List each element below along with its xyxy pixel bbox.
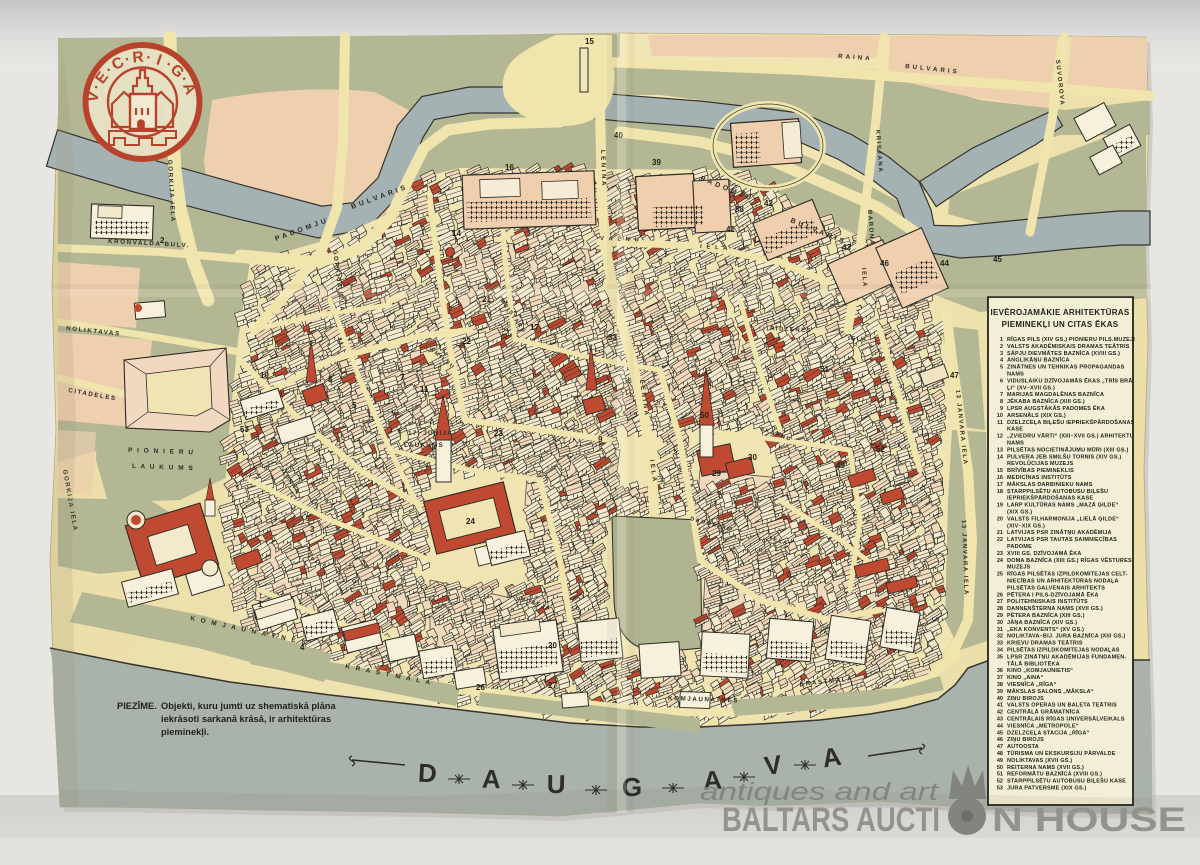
svg-text:39: 39 — [997, 689, 1003, 695]
svg-text:38: 38 — [735, 205, 744, 214]
svg-text:PĒTERA BAZNĪCA (XIII GS.): PĒTERA BAZNĪCA (XIII GS.) — [1007, 612, 1085, 619]
svg-text:(XIX GS.): (XIX GS.) — [1007, 510, 1032, 516]
svg-text:8: 8 — [328, 375, 333, 384]
svg-text:12: 12 — [997, 434, 1003, 440]
svg-text:VALSTS OPERAS UN BALETA TEĀTRI: VALSTS OPERAS UN BALETA TEĀTRIS — [1007, 702, 1117, 709]
svg-text:BRĪVĪBAS PIEMINEKLIS: BRĪVĪBAS PIEMINEKLIS — [1007, 467, 1074, 474]
svg-text:7: 7 — [1000, 392, 1003, 398]
svg-text:MUZEJS: MUZEJS — [1007, 565, 1031, 571]
svg-text:50: 50 — [997, 765, 1003, 771]
svg-text:VIESNĪCA „RĪGA“: VIESNĪCA „RĪGA“ — [1007, 681, 1057, 688]
svg-text:26: 26 — [476, 683, 485, 692]
svg-text:IELA: IELA — [848, 336, 868, 343]
svg-text:25: 25 — [997, 572, 1003, 578]
svg-text:KINO „AINA“: KINO „AINA“ — [1007, 675, 1043, 681]
svg-text:Objekti, kuru jumti uz shemati: Objekti, kuru jumti uz shematiskā plāna — [161, 701, 336, 711]
svg-text:NAMS: NAMS — [1007, 441, 1024, 447]
svg-text:MEDICĪNAS INSTITŪTS: MEDICĪNAS INSTITŪTS — [1007, 474, 1072, 481]
svg-text:48: 48 — [997, 751, 1003, 757]
svg-text:SĀPJU DIEVMĀTES BAZNĪCA (XVIII: SĀPJU DIEVMĀTES BAZNĪCA (XVIII GS.) — [1007, 350, 1120, 357]
svg-text:20: 20 — [997, 516, 1003, 522]
svg-text:1: 1 — [1000, 337, 1003, 343]
svg-text:36: 36 — [997, 668, 1003, 674]
svg-text:KINO „KOMJAUNIETIS“: KINO „KOMJAUNIETIS“ — [1007, 668, 1073, 674]
svg-text:LARP KULTŪRAS NAMS „MAZĀ ĢILDE: LARP KULTŪRAS NAMS „MAZĀ ĢILDE“ — [1007, 502, 1118, 509]
svg-text:DOMA BAZNĪCA (XIII GS.) RĪGAS: DOMA BAZNĪCA (XIII GS.) RĪGAS VĒSTURES — [1007, 557, 1132, 564]
svg-text:6: 6 — [1000, 378, 1003, 384]
svg-text:17. JUNIJA: 17. JUNIJA — [408, 430, 453, 437]
svg-text:51: 51 — [997, 772, 1003, 778]
svg-text:1: 1 — [258, 600, 263, 609]
svg-text:LPSR AUGSTĀKĀS PADOMES ĒKA: LPSR AUGSTĀKĀS PADOMES ĒKA — [1007, 405, 1105, 412]
svg-text:ZINĀTNES UN TEHNIKAS PROPAGAND: ZINĀTNES UN TEHNIKAS PROPAGANDAS — [1007, 364, 1125, 371]
svg-text:STARPPILSĒTU AUTOBUSU BIĻEŠU K: STARPPILSĒTU AUTOBUSU BIĻEŠU KASE — [1007, 777, 1126, 785]
svg-text:35: 35 — [997, 654, 1003, 660]
svg-text:37: 37 — [997, 675, 1003, 681]
svg-text:47: 47 — [997, 744, 1003, 750]
svg-text:PIEMINEKĻI UN CITAS ĒKAS: PIEMINEKĻI UN CITAS ĒKAS — [1002, 320, 1119, 329]
svg-text:17: 17 — [997, 482, 1003, 488]
svg-text:50: 50 — [700, 411, 709, 420]
svg-text:MĀKSLAS SALONS „MĀKSLA“: MĀKSLAS SALONS „MĀKSLA“ — [1007, 688, 1094, 695]
svg-text:41: 41 — [997, 703, 1003, 709]
svg-text:CENTRĀLAIS RĪGAS UNIVERSĀLVEIK: CENTRĀLAIS RĪGAS UNIVERSĀLVEIKALS — [1007, 716, 1125, 723]
svg-text:iekrāsoti sarkanā krāsā, ir ar: iekrāsoti sarkanā krāsā, ir arhitektūras — [161, 714, 331, 724]
svg-text:3: 3 — [310, 525, 315, 534]
svg-text:2: 2 — [160, 236, 165, 245]
svg-text:NIECĪBAS UN ARHITEKTŪRAS NODAĻ: NIECĪBAS UN ARHITEKTŪRAS NODAĻA — [1007, 578, 1119, 585]
svg-text:53: 53 — [997, 786, 1003, 792]
svg-text:NOLIKTAVA–BIJ. JURA BAZNĪCA (X: NOLIKTAVA–BIJ. JURA BAZNĪCA (XIII GS.) — [1007, 633, 1125, 640]
svg-text:XVIII GS. DZĪVOJAMĀ ĒKA: XVIII GS. DZĪVOJAMĀ ĒKA — [1007, 550, 1082, 557]
svg-text:10: 10 — [260, 371, 269, 380]
svg-text:46: 46 — [997, 737, 1003, 743]
svg-text:BALTARS AUCTI: BALTARS AUCTI — [722, 801, 940, 839]
svg-text:DZELZCEĻA STACIJA „RĪGA“: DZELZCEĻA STACIJA „RĪGA“ — [1007, 729, 1090, 736]
svg-text:18: 18 — [997, 489, 1003, 495]
svg-text:33: 33 — [997, 641, 1003, 647]
svg-text:16: 16 — [505, 163, 514, 172]
svg-text:KRIEVU DRAMAS TEĀTRIS: KRIEVU DRAMAS TEĀTRIS — [1007, 640, 1083, 647]
svg-text:7: 7 — [400, 373, 405, 382]
svg-text:TĀLĀ BIBLIOTĒKA: TĀLĀ BIBLIOTĒKA — [1007, 660, 1060, 667]
svg-text:AUTOOSTA: AUTOOSTA — [1007, 744, 1039, 750]
svg-text:RĪGAS PILS (XIV GS.) PIONIERU: RĪGAS PILS (XIV GS.) PIONIERU PILS.MUZEJ… — [1007, 336, 1135, 343]
svg-text:„ZVIEDRU VĀRTI“ (XIII–XVII GS.: „ZVIEDRU VĀRTI“ (XIII–XVII GS.) ARHITEKT… — [1007, 433, 1134, 440]
svg-text:VALSTS FILHARMONIJA „LIELĀ ĢIL: VALSTS FILHARMONIJA „LIELĀ ĢILDE“ — [1007, 515, 1119, 522]
svg-text:JĀŅA BAZNĪCA (XIV GS.): JĀŅA BAZNĪCA (XIV GS.) — [1007, 619, 1077, 626]
svg-text:46: 46 — [880, 259, 889, 268]
svg-text:NOLIKTAVAS (XVII GS.): NOLIKTAVAS (XVII GS.) — [1007, 758, 1072, 764]
svg-text:JURA PATVERSME (XIX GS.): JURA PATVERSME (XIX GS.) — [1007, 786, 1087, 792]
svg-text:43: 43 — [842, 243, 851, 252]
svg-text:REVOLŪCIJAS MUZEJS: REVOLŪCIJAS MUZEJS — [1007, 460, 1074, 467]
svg-text:VIDUSLAIKU DZĪVOJAMĀS ĒKAS „TR: VIDUSLAIKU DZĪVOJAMĀS ĒKAS „TRĪS BRĀ- — [1007, 377, 1135, 384]
svg-text:pieminekļi.: pieminekļi. — [161, 727, 209, 737]
svg-text:11: 11 — [997, 420, 1003, 426]
svg-text:20: 20 — [548, 641, 557, 650]
svg-text:NAMS: NAMS — [1007, 372, 1024, 378]
svg-text:47: 47 — [950, 371, 959, 380]
svg-text:43: 43 — [997, 717, 1003, 723]
svg-text:3: 3 — [1000, 351, 1003, 357]
svg-text:DANNENŠTERNA NAMS (XVII GS.): DANNENŠTERNA NAMS (XVII GS.) — [1007, 604, 1103, 612]
svg-text:15: 15 — [997, 468, 1003, 474]
svg-text:A: A — [481, 764, 501, 795]
svg-text:VIESNĪCA „METROPOLE“: VIESNĪCA „METROPOLE“ — [1007, 722, 1079, 729]
svg-text:N HOUSE: N HOUSE — [992, 801, 1186, 839]
svg-text:23: 23 — [494, 429, 503, 438]
svg-text:4: 4 — [300, 643, 305, 652]
svg-text:14: 14 — [997, 454, 1004, 460]
svg-text:27: 27 — [548, 681, 557, 690]
svg-text:IEPRIEKŠPĀRDOŠANAS KASE: IEPRIEKŠPĀRDOŠANAS KASE — [1007, 494, 1093, 502]
svg-text:REFORMĀTU BAZNĪCA (XVIII GS.): REFORMĀTU BAZNĪCA (XVIII GS.) — [1007, 771, 1102, 778]
svg-text:42: 42 — [764, 199, 773, 208]
svg-text:24: 24 — [997, 558, 1004, 564]
svg-text:ARSENĀLS (XIX GS.): ARSENĀLS (XIX GS.) — [1007, 412, 1066, 419]
svg-text:JĒKABA BAZNĪCA (XIII GS.): JĒKABA BAZNĪCA (XIII GS.) — [1007, 398, 1085, 405]
svg-text:9: 9 — [598, 435, 603, 444]
svg-text:26: 26 — [997, 592, 1003, 598]
svg-text:REITERNA NAMS (XVII GS.): REITERNA NAMS (XVII GS.) — [1007, 765, 1084, 771]
svg-text:ĻI“ (XV–XVII GS.): ĻI“ (XV–XVII GS.) — [1007, 385, 1055, 391]
svg-text:38: 38 — [997, 682, 1003, 688]
svg-text:32: 32 — [997, 634, 1003, 640]
svg-text:42: 42 — [997, 710, 1003, 716]
svg-text:17: 17 — [530, 323, 539, 332]
svg-text:16: 16 — [997, 475, 1003, 481]
svg-text:53: 53 — [240, 425, 249, 434]
svg-text:51: 51 — [820, 365, 829, 374]
svg-text:22: 22 — [462, 337, 471, 346]
svg-text:D: D — [417, 758, 437, 789]
svg-text:10: 10 — [997, 413, 1003, 419]
svg-text:29: 29 — [997, 613, 1003, 619]
svg-text:9: 9 — [1000, 406, 1003, 412]
svg-text:44: 44 — [940, 259, 949, 268]
svg-text:15: 15 — [585, 37, 594, 46]
svg-text:PILSĒTAS IZPILDKOMITEJAS NODAĻ: PILSĒTAS IZPILDKOMITEJAS NODAĻAS — [1007, 647, 1120, 654]
svg-text:R: R — [132, 49, 145, 67]
svg-text:14: 14 — [452, 229, 461, 238]
svg-text:44: 44 — [997, 723, 1004, 729]
svg-text:49: 49 — [836, 461, 845, 470]
svg-text:PILSĒTAS GALVENAIS ARHITEKTS: PILSĒTAS GALVENAIS ARHITEKTS — [1007, 584, 1105, 591]
svg-text:RĪGAS PILSĒTAS IZPILDKOMITEJAS: RĪGAS PILSĒTAS IZPILDKOMITEJAS CELT- — [1007, 571, 1128, 578]
svg-text:LATVIJAS PSR ZINĀTŅU AKADĒMIJA: LATVIJAS PSR ZINĀTŅU AKADĒMIJA — [1007, 529, 1112, 536]
svg-text:TŪRISMA UN EKSKURSIJU PĀRVALDE: TŪRISMA UN EKSKURSIJU PĀRVALDE — [1007, 750, 1116, 757]
svg-text:24: 24 — [466, 517, 475, 526]
svg-text:39: 39 — [652, 158, 661, 167]
svg-text:IEVĒROJAMĀKIE ARHITEKTŪRAS: IEVĒROJAMĀKIE ARHITEKTŪRAS — [990, 308, 1129, 317]
svg-text:41: 41 — [726, 225, 735, 234]
svg-text:45: 45 — [997, 730, 1003, 736]
svg-text:MĀKSLAS DARBINIEKU NAMS: MĀKSLAS DARBINIEKU NAMS — [1007, 481, 1093, 488]
svg-text:LAUKUMS: LAUKUMS — [404, 442, 444, 449]
svg-text:ANGLIKĀŅU BAZNĪCA: ANGLIKĀŅU BAZNĪCA — [1007, 357, 1070, 364]
svg-text:5: 5 — [1000, 365, 1003, 371]
svg-text:PADOME: PADOME — [1007, 544, 1032, 550]
svg-text:11: 11 — [420, 385, 429, 394]
svg-text:30: 30 — [748, 453, 757, 462]
svg-text:STARPPILSĒTU AUTOBUSU BIĻEŠU: STARPPILSĒTU AUTOBUSU BIĻEŠU — [1007, 487, 1108, 495]
svg-text:52: 52 — [876, 445, 885, 454]
svg-text:PULVERA JEB SMILŠU TORNIS (XIV: PULVERA JEB SMILŠU TORNIS (XIV GS.) — [1007, 452, 1121, 460]
svg-text:PILSĒTAS NOCIETINĀJUMU MŪRI (X: PILSĒTAS NOCIETINĀJUMU MŪRI (XIII GS.) — [1007, 446, 1128, 453]
svg-text:CENTRĀLĀ GRĀMATNĪCA: CENTRĀLĀ GRĀMATNĪCA — [1007, 709, 1080, 716]
svg-text:PIEZĪME.: PIEZĪME. — [117, 701, 157, 711]
svg-text:POLITEHNISKAIS INSTITŪTS: POLITEHNISKAIS INSTITŪTS — [1007, 598, 1088, 605]
svg-text:29: 29 — [712, 469, 721, 478]
svg-text:31: 31 — [997, 627, 1003, 633]
svg-text:27: 27 — [997, 599, 1003, 605]
svg-text:VALSTS AKADĒMISKAIS DRAMAS TEĀ: VALSTS AKADĒMISKAIS DRAMAS TEĀTRIS — [1007, 343, 1130, 350]
svg-text:(XIV–XIX GS.): (XIV–XIX GS.) — [1007, 523, 1045, 529]
svg-text:MARIJAS MAGDALĒNAS BAZNĪCA: MARIJAS MAGDALĒNAS BAZNĪCA — [1007, 391, 1104, 398]
svg-text:LPSR ZINĀTŅU AKADĒMIJAS FUNDAM: LPSR ZINĀTŅU AKADĒMIJAS FUNDAMEN- — [1007, 653, 1126, 660]
svg-text:21: 21 — [997, 530, 1003, 536]
svg-text:5: 5 — [352, 401, 357, 410]
svg-text:2: 2 — [1000, 344, 1003, 350]
svg-text:40: 40 — [997, 696, 1003, 702]
svg-text:22: 22 — [997, 537, 1003, 543]
svg-text:23: 23 — [997, 551, 1003, 557]
svg-text:DZELZCEĻA BIĻEŠU IEPRIEKŠPĀRDO: DZELZCEĻA BIĻEŠU IEPRIEKŠPĀRDOŠANAS — [1007, 418, 1135, 426]
svg-text:52: 52 — [997, 779, 1003, 785]
svg-text:28: 28 — [997, 606, 1003, 612]
svg-text:PĒTERA I PILS-DZĪVOJAMĀ ĒKA: PĒTERA I PILS-DZĪVOJAMĀ ĒKA — [1007, 591, 1099, 598]
svg-text:ZIŅU BIROJS: ZIŅU BIROJS — [1007, 696, 1044, 702]
svg-text:LENINA: LENINA — [599, 150, 607, 188]
svg-text:34: 34 — [997, 648, 1004, 654]
svg-text:„EKA KONVENTS“ (XV GS.): „EKA KONVENTS“ (XV GS.) — [1007, 627, 1084, 633]
svg-text:LATVIJAS PSR TAUTAS SAIMNIECĪB: LATVIJAS PSR TAUTAS SAIMNIECĪBAS — [1007, 536, 1117, 543]
svg-text:KASE: KASE — [1007, 427, 1023, 433]
svg-text:ZIŅU BIROJS: ZIŅU BIROJS — [1007, 737, 1044, 743]
svg-text:13: 13 — [997, 447, 1003, 453]
svg-text:19: 19 — [997, 503, 1003, 509]
svg-text:30: 30 — [997, 620, 1003, 626]
svg-text:45: 45 — [993, 255, 1002, 264]
svg-text:8: 8 — [1000, 399, 1003, 405]
svg-text:49: 49 — [997, 758, 1003, 764]
